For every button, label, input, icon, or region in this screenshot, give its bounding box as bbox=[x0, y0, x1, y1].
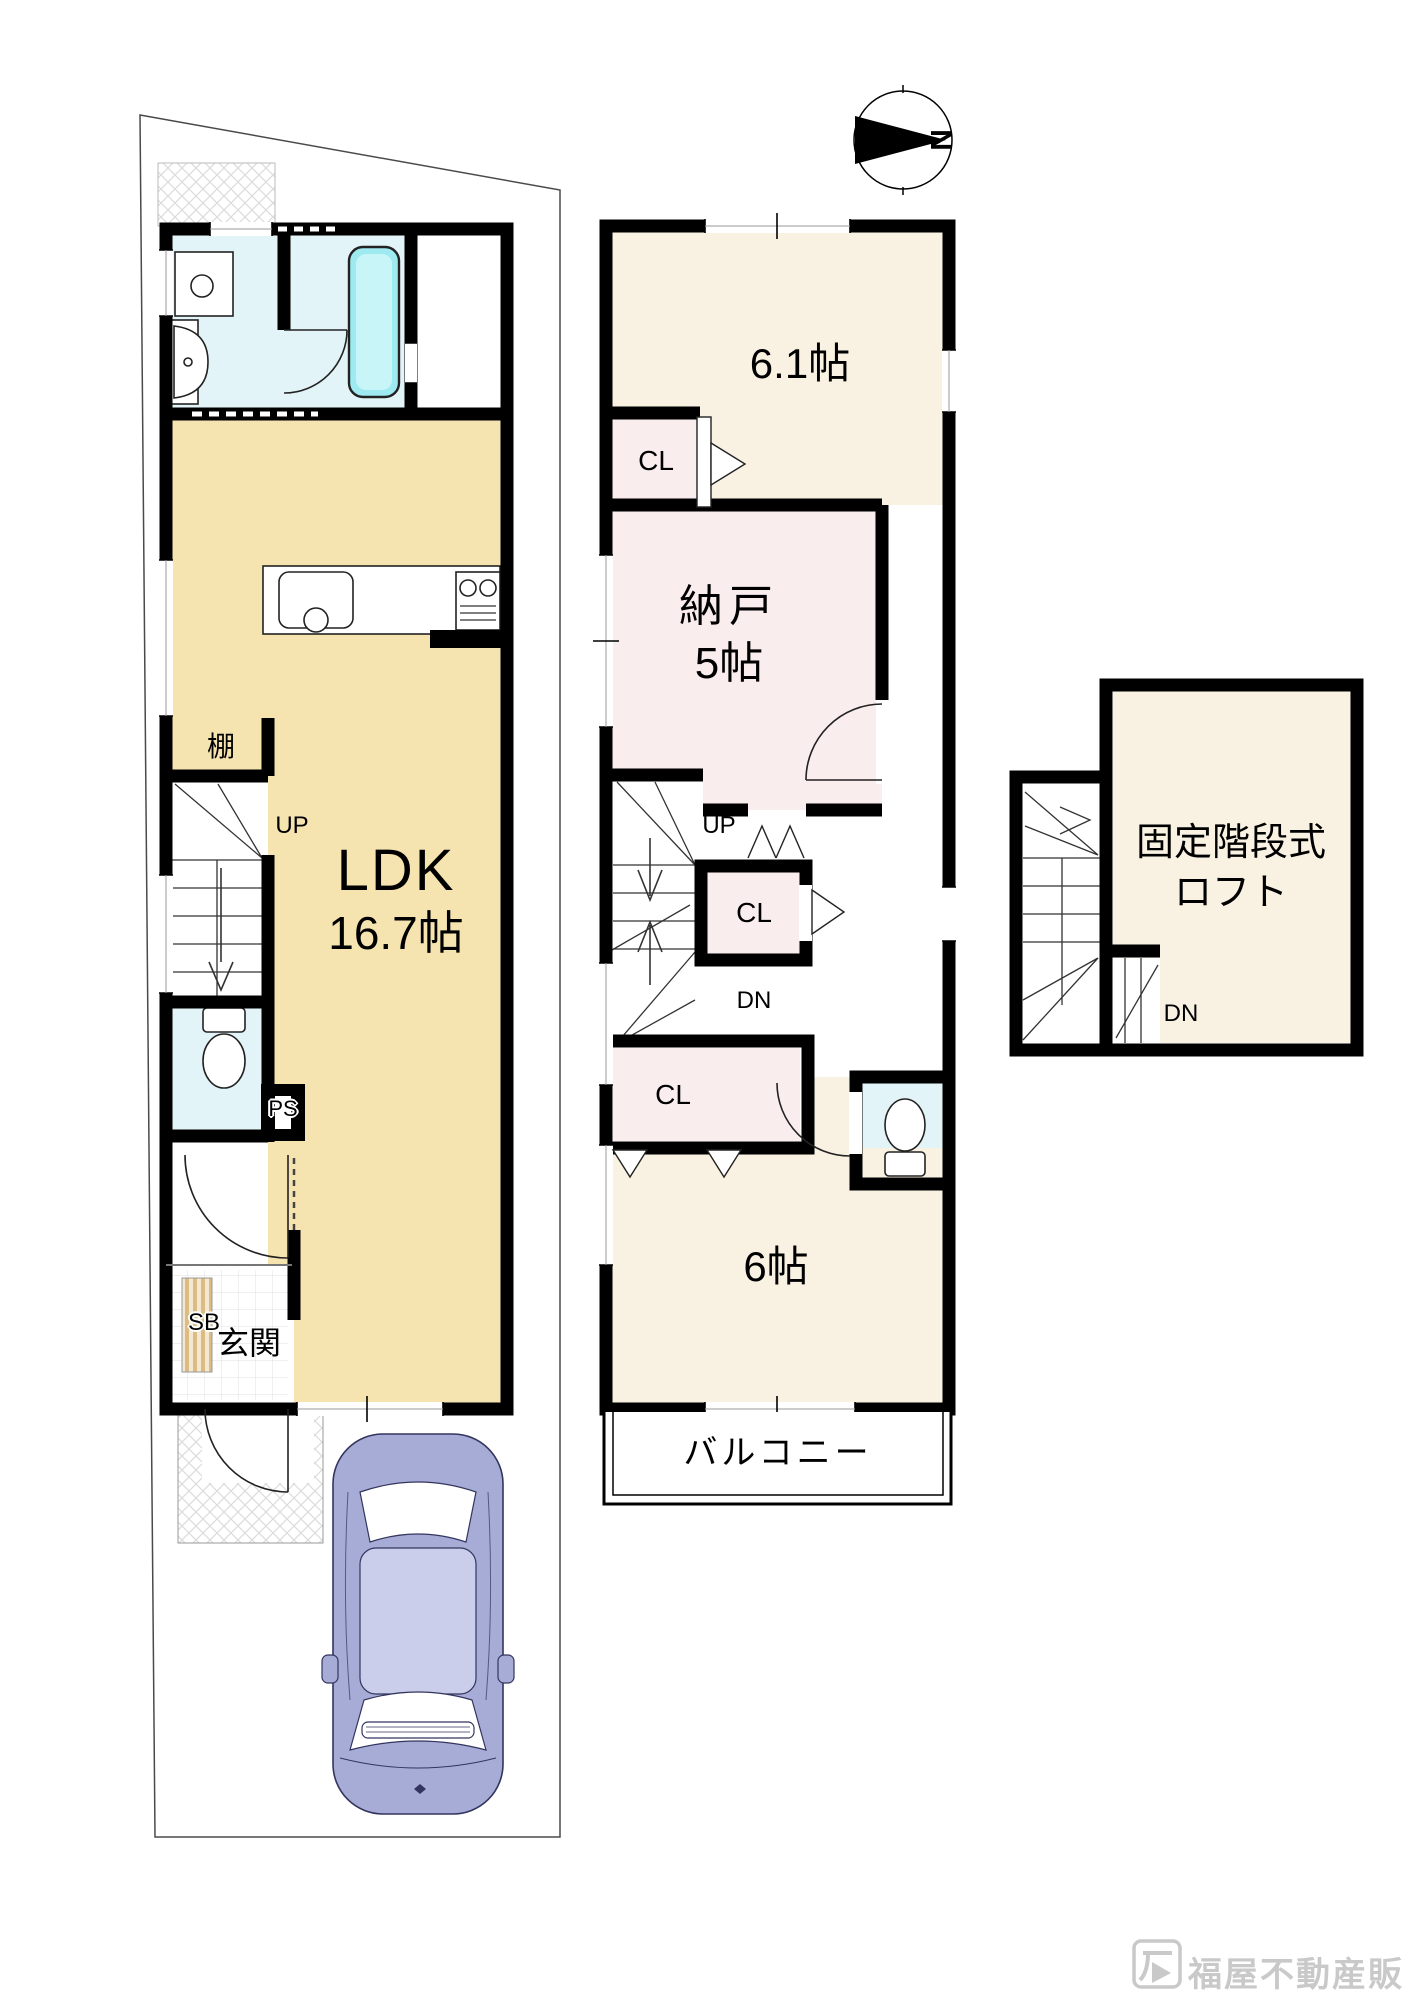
car-windshield bbox=[350, 1692, 486, 1750]
utility-space bbox=[411, 229, 507, 414]
car-mirror-right bbox=[498, 1655, 514, 1683]
kitchen-wall-stub bbox=[430, 630, 507, 648]
floor1-plan bbox=[159, 222, 507, 1492]
hallway-1f bbox=[166, 1136, 268, 1265]
balcony bbox=[604, 1412, 951, 1504]
compass bbox=[854, 85, 952, 195]
closet-2 bbox=[706, 872, 800, 954]
toilet2f-door bbox=[849, 1092, 862, 1154]
brand-logo-icon bbox=[1134, 1941, 1180, 1987]
toilet-icon-1f bbox=[203, 1008, 245, 1088]
car-mirror-left bbox=[322, 1655, 338, 1683]
closet2-door bbox=[799, 885, 844, 941]
toilet-icon-2f bbox=[885, 1099, 925, 1176]
car-rear-window bbox=[360, 1482, 476, 1542]
floor-plan-page: 棚 UP LDK 16.7帖 PS SB 玄関 6.1帖 CL 納戸 5帖 UP… bbox=[0, 0, 1421, 2000]
north-porch bbox=[158, 163, 275, 226]
bathtub-icon bbox=[349, 247, 399, 397]
car-roof bbox=[360, 1548, 476, 1694]
stove-icon bbox=[456, 572, 500, 630]
loft-plan bbox=[1016, 685, 1357, 1050]
faucet-icon bbox=[304, 608, 328, 632]
stairwell-2f bbox=[606, 775, 703, 1050]
closet-3 bbox=[613, 1048, 800, 1141]
closet-1 bbox=[606, 413, 700, 505]
floor2-plan bbox=[593, 213, 956, 1504]
hall-double-door bbox=[748, 826, 804, 858]
car-top-view bbox=[322, 1434, 514, 1814]
floor-plan-drawing bbox=[0, 0, 1421, 2000]
washing-machine-icon bbox=[175, 252, 233, 316]
shoe-box bbox=[182, 1278, 212, 1372]
storage-room bbox=[606, 505, 882, 810]
